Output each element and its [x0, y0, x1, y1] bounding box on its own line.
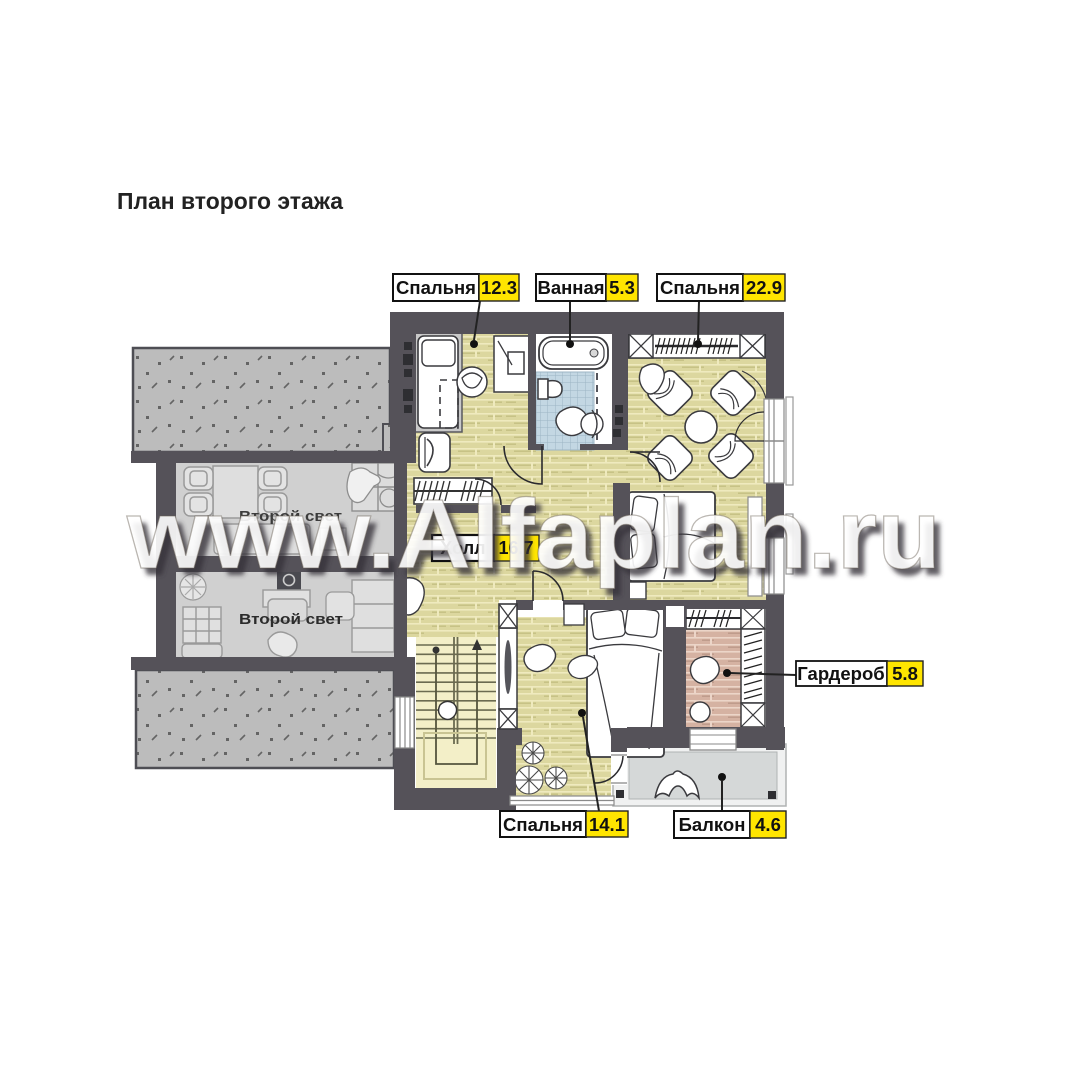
svg-text:22.9: 22.9: [746, 277, 782, 298]
svg-text:Спальня: Спальня: [503, 814, 583, 835]
svg-text:Балкон: Балкон: [679, 814, 746, 835]
svg-text:12.3: 12.3: [481, 277, 517, 298]
svg-text:Спальня: Спальня: [660, 277, 740, 298]
svg-text:www.Alfaplan.ru: www.Alfaplan.ru: [126, 479, 941, 589]
svg-text:5.8: 5.8: [892, 663, 918, 684]
svg-text:Гардероб: Гардероб: [797, 663, 884, 684]
svg-text:Ванная: Ванная: [537, 277, 604, 298]
svg-text:План второго этажа: План второго этажа: [117, 188, 343, 214]
svg-text:Второй свет: Второй свет: [239, 611, 343, 628]
svg-text:4.6: 4.6: [755, 814, 781, 835]
svg-text:Спальня: Спальня: [396, 277, 476, 298]
svg-text:5.3: 5.3: [609, 277, 635, 298]
svg-text:14.1: 14.1: [589, 814, 625, 835]
